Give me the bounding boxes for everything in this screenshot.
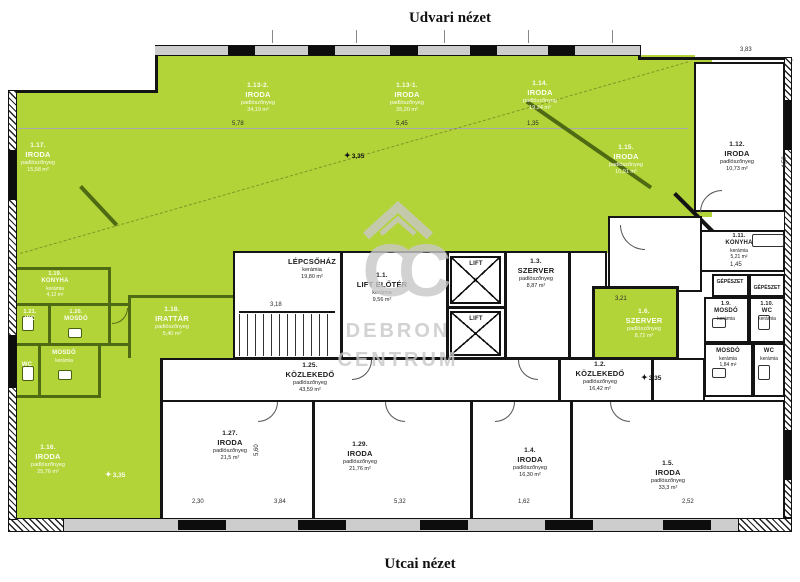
dimension: 5,32 [394,499,406,505]
room-label-1-6: 1.6.SZERVERpadlószőnyeg8,72 m² [626,308,663,340]
room-label-1-19: 1.19.KONYHAkerámia4,12 m² [41,271,68,299]
wall [108,267,111,345]
room-label-1-2: 1.2.KÖZLEKEDŐpadlószőnyeg16,42 m² [576,361,625,393]
wall [568,253,571,357]
room-label-1-11: 1.11.KONYHAkerámia5,21 m² [725,233,752,261]
room-1-12 [694,62,785,212]
watermark: CC DEBRON CENTRUM [336,190,460,375]
survey-tick [528,30,529,43]
toilet [758,365,770,380]
room-label-1-12: 1.12.IRODApadlószőnyeg10,73 m² [720,141,754,173]
view-title-bottom: Utcai nézet [40,556,800,573]
room-label-1-18: 1.18.IRATTÁRpadlószőnyeg5,40 m² [155,306,189,338]
wall [17,395,101,398]
dimension: 1,45 [730,262,742,268]
wall [17,343,130,346]
level-marker-icon: ✦ [641,374,648,382]
room-label-1-20: 1.20.MOSDÓ [64,309,88,324]
room-label-1-13-2: 1.13-2.IRODApadlószőnyeg34,19 m² [241,82,275,114]
watermark-line2: CENTRUM [336,346,460,375]
wall [312,400,315,518]
dimension: 2,30 [192,499,204,505]
level-marker: ✦3,35 [105,471,125,479]
room-label-lift-1: LIFT [469,261,482,269]
dimension-line [18,128,688,129]
dimension: 4,59 [782,156,788,168]
wall [17,303,130,306]
wall [8,90,158,93]
wall [128,295,131,358]
room-label-1-7: WCkerámia [760,348,778,362]
dimension: 1,62 [518,499,530,505]
sink [712,368,726,378]
wall [470,400,473,518]
window [545,520,593,530]
wall [38,343,41,397]
room-gepeszet-1 [712,274,749,297]
window [9,150,16,200]
window [785,430,791,480]
dimension: 3,83 [740,47,752,53]
room-label-1-15: 1.15.IRODApadlószőnyeg10,91 m² [609,144,643,176]
survey-tick [444,30,445,43]
wall [638,57,786,60]
wall [504,253,507,357]
wall [570,400,573,518]
watermark-line1: DEBRON [336,317,460,346]
wall [98,343,101,397]
window [308,46,335,55]
dimension: 5,78 [232,121,244,127]
room-label-1-4: 1.4.IRODApadlószőnyeg16,30 m² [513,447,547,479]
level-marker: ✦3,35 [641,374,661,382]
room-label-stairs: LÉPCSŐHÁZkerámia19,80 m² [288,257,336,281]
room-label-1-25: 1.25.KÖZLEKEDŐpadlószőnyeg43,59 m² [286,362,335,394]
room-label-1-27: 1.27.IRODApadlószőnyeg21,5 m² [213,430,247,462]
room-label-1-14: 1.14.IRODApadlószőnyeg19,24 m² [523,80,557,112]
level-marker-icon: ✦ [105,471,112,479]
room-label-1-22: MOSDÓkerámia [52,350,76,364]
window [663,520,711,530]
floor-plan: Udvari nézet Utcai nézet [0,0,800,582]
dimension: 1,35 [527,121,539,127]
svg-text:CC: CC [363,229,450,312]
room-label-1-5: 1.5.IRODApadlószőnyeg33,3 m² [651,460,685,492]
dimension: 3,84 [274,499,286,505]
sink [68,328,82,338]
window [228,46,255,55]
kitchen-counter [752,234,784,247]
survey-tick [356,30,357,43]
level-marker-icon: ✦ [344,152,351,160]
room-label-1-10: 1.10.WCkerámia [758,301,776,322]
room-label-1-29: 1.29.IRODApadlószőnyeg21,76 m² [343,441,377,473]
window [298,520,346,530]
room-label-gepeszet-2: GÉPÉSZET [754,285,781,292]
dimension: 3,21 [615,296,627,302]
sink [58,370,72,380]
room-label-1-13-1: 1.13-1.IRODApadlószőnyeg35,20 m² [390,82,424,114]
room-label-gepeszet-1: GÉPÉSZET [717,279,744,286]
level-marker: ✦3,35 [344,152,364,160]
window [390,46,418,55]
watermark-logo-icon: CC [346,190,450,312]
survey-tick [612,30,613,43]
room-label-1-17: 1.17.IRODApadlószőnyeg15,58 m² [21,142,55,174]
room-label-lift-2: LIFT [469,316,482,324]
wall [128,295,233,298]
view-title-top: Udvari nézet [100,10,800,27]
stairs [239,314,335,356]
wall-hatch [8,518,64,532]
window [785,100,791,150]
window [470,46,497,55]
dimension: 5,60 [254,444,260,456]
dimension: 2,52 [682,499,694,505]
wall [160,360,163,518]
room-label-1-8: MOSDÓkerámia1,84 m² [716,348,740,369]
room-label-1-3: 1.3.SZERVERpadlószőnyeg8,87 m² [518,258,555,290]
window [548,46,575,55]
wall-hatch [738,518,792,532]
room-label-1-23: WC [22,362,32,370]
dimension: 5,45 [396,121,408,127]
wall [48,303,51,345]
window [420,520,468,530]
dimension: 3,18 [270,302,282,308]
window [9,335,16,388]
wall [17,267,110,270]
wall [155,55,158,92]
room-label-1-16: 1.16.IRODApadlószőnyeg25,76 m² [31,444,65,476]
window [178,520,226,530]
room-label-1-21: 1.21.WC [23,309,36,324]
stair-rail [239,311,335,313]
room-label-1-9: 1.9.MOSDÓkerámia [714,301,738,322]
survey-tick [272,30,273,43]
wall [558,358,561,402]
